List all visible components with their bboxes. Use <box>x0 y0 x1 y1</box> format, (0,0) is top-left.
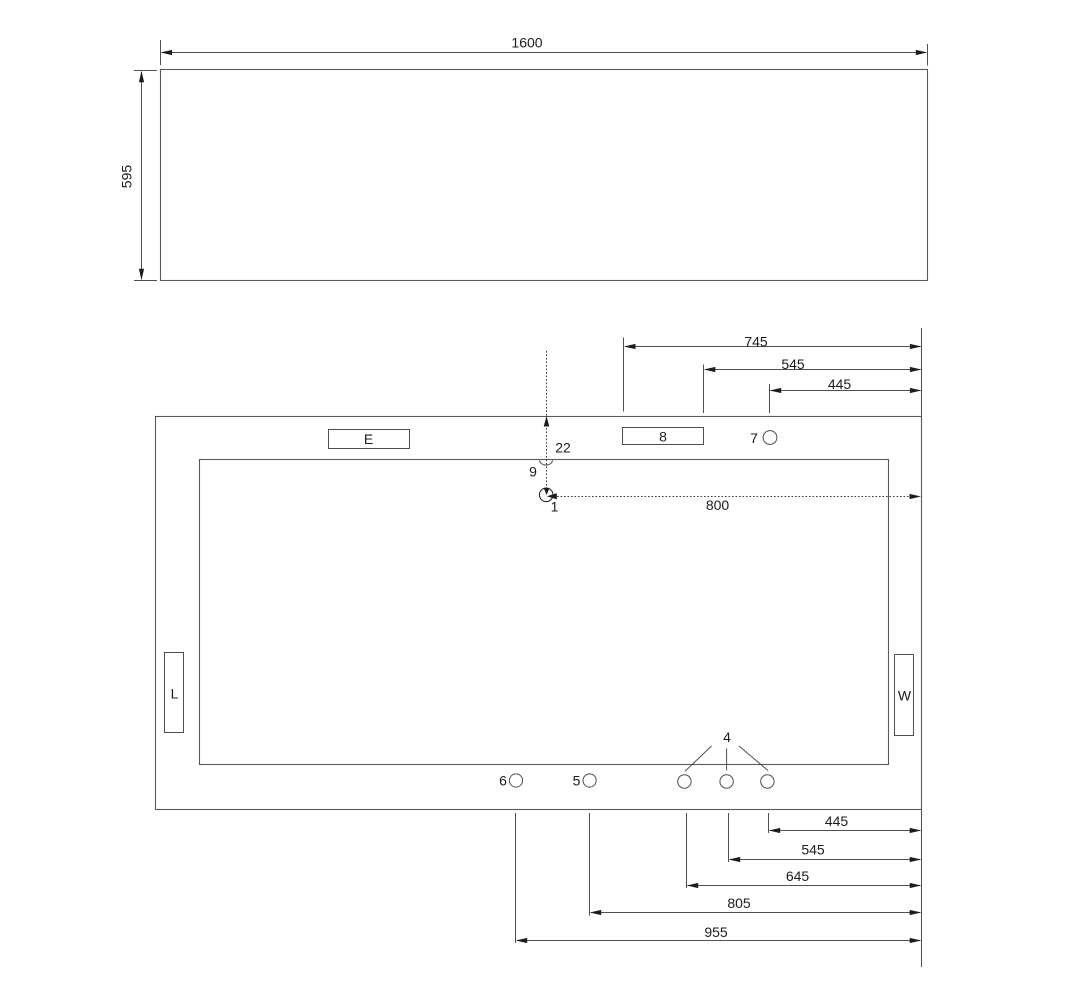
svg-text:4: 4 <box>723 729 731 745</box>
svg-text:545: 545 <box>781 356 805 372</box>
svg-text:595: 595 <box>119 165 135 189</box>
svg-text:445: 445 <box>828 376 852 392</box>
svg-text:955: 955 <box>704 924 728 940</box>
svg-text:545: 545 <box>801 842 825 858</box>
svg-text:E: E <box>364 431 373 447</box>
svg-text:L: L <box>171 686 179 702</box>
svg-text:1: 1 <box>551 499 559 515</box>
svg-text:22: 22 <box>555 440 571 456</box>
svg-text:645: 645 <box>786 868 810 884</box>
svg-text:800: 800 <box>706 497 730 513</box>
svg-text:1600: 1600 <box>511 35 542 51</box>
svg-text:W: W <box>898 688 912 704</box>
svg-text:7: 7 <box>750 430 758 446</box>
svg-text:445: 445 <box>825 813 849 829</box>
svg-text:745: 745 <box>744 334 768 350</box>
svg-text:805: 805 <box>727 895 751 911</box>
svg-text:9: 9 <box>529 464 537 480</box>
svg-text:6: 6 <box>499 773 507 789</box>
svg-text:5: 5 <box>573 773 581 789</box>
svg-text:8: 8 <box>659 429 667 445</box>
